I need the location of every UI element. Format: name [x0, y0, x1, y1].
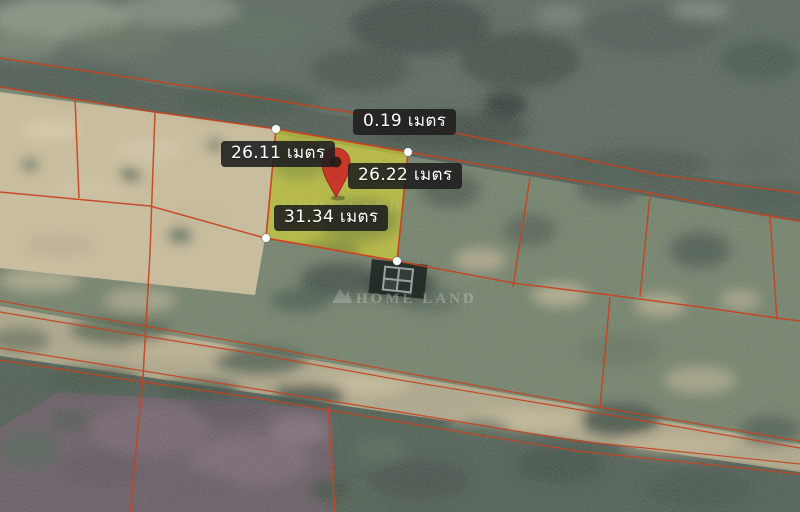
map-canvas[interactable]: HOME LAND HOME LAND 0.19 เมตร 26.11 เมตร…	[0, 0, 800, 512]
vertex-dot-ne	[404, 148, 413, 157]
vertex-dot-nw	[272, 125, 281, 134]
measurement-label-right: 26.22 เมตร	[348, 163, 462, 189]
vertex-dot-se	[393, 257, 402, 266]
image-grain	[0, 0, 800, 512]
watermark-text: HOME LAND	[356, 291, 477, 307]
measurement-label-bottom: 31.34 เมตร	[274, 205, 388, 231]
measurement-label-left: 26.11 เมตร	[221, 141, 335, 167]
satellite-basemap: HOME LAND HOME LAND	[0, 0, 800, 512]
measurement-label-top: 0.19 เมตร	[353, 109, 456, 135]
vertex-dot-sw	[262, 234, 271, 243]
